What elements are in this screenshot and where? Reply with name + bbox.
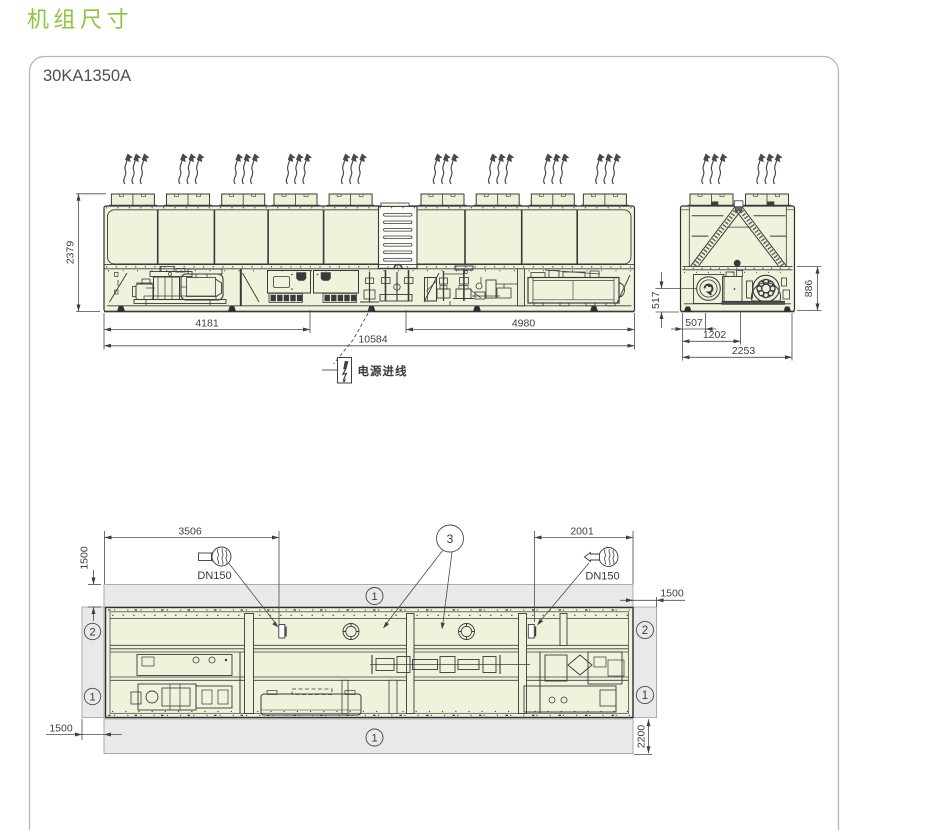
svg-text:2379: 2379	[65, 241, 77, 265]
svg-text:4980: 4980	[512, 317, 536, 329]
svg-text:507: 507	[685, 317, 703, 329]
svg-text:1: 1	[642, 690, 648, 702]
svg-text:886: 886	[803, 280, 815, 298]
svg-text:2200: 2200	[636, 725, 648, 749]
svg-text:2001: 2001	[570, 525, 594, 537]
svg-text:517: 517	[650, 291, 662, 309]
svg-text:1500: 1500	[660, 588, 684, 600]
svg-text:10584: 10584	[358, 334, 387, 346]
svg-text:电源进线: 电源进线	[358, 364, 408, 378]
svg-text:机组尺寸: 机组尺寸	[27, 7, 133, 32]
svg-text:1: 1	[371, 733, 377, 745]
svg-text:3506: 3506	[178, 525, 202, 537]
svg-text:30KA1350A: 30KA1350A	[43, 67, 131, 85]
svg-text:2253: 2253	[732, 345, 756, 357]
svg-text:1500: 1500	[79, 546, 91, 570]
svg-text:2: 2	[89, 627, 95, 639]
svg-text:DN150: DN150	[197, 570, 231, 582]
svg-text:4181: 4181	[195, 317, 219, 329]
svg-text:3: 3	[447, 532, 454, 546]
svg-text:1: 1	[89, 692, 95, 704]
svg-text:1: 1	[371, 591, 377, 603]
svg-text:DN150: DN150	[585, 571, 619, 583]
svg-text:2: 2	[642, 625, 648, 637]
svg-text:1500: 1500	[49, 722, 73, 734]
svg-text:1202: 1202	[703, 329, 727, 341]
